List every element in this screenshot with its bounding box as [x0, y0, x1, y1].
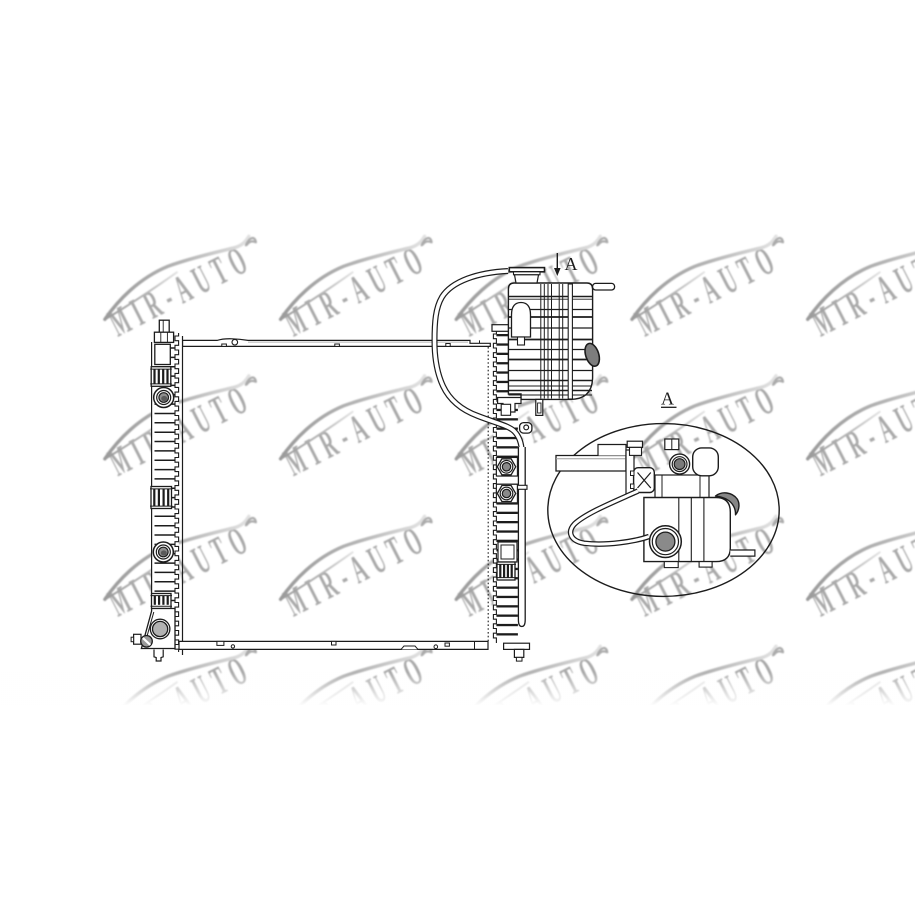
svg-text:A: A [565, 254, 578, 274]
svg-text:A: A [661, 389, 674, 409]
